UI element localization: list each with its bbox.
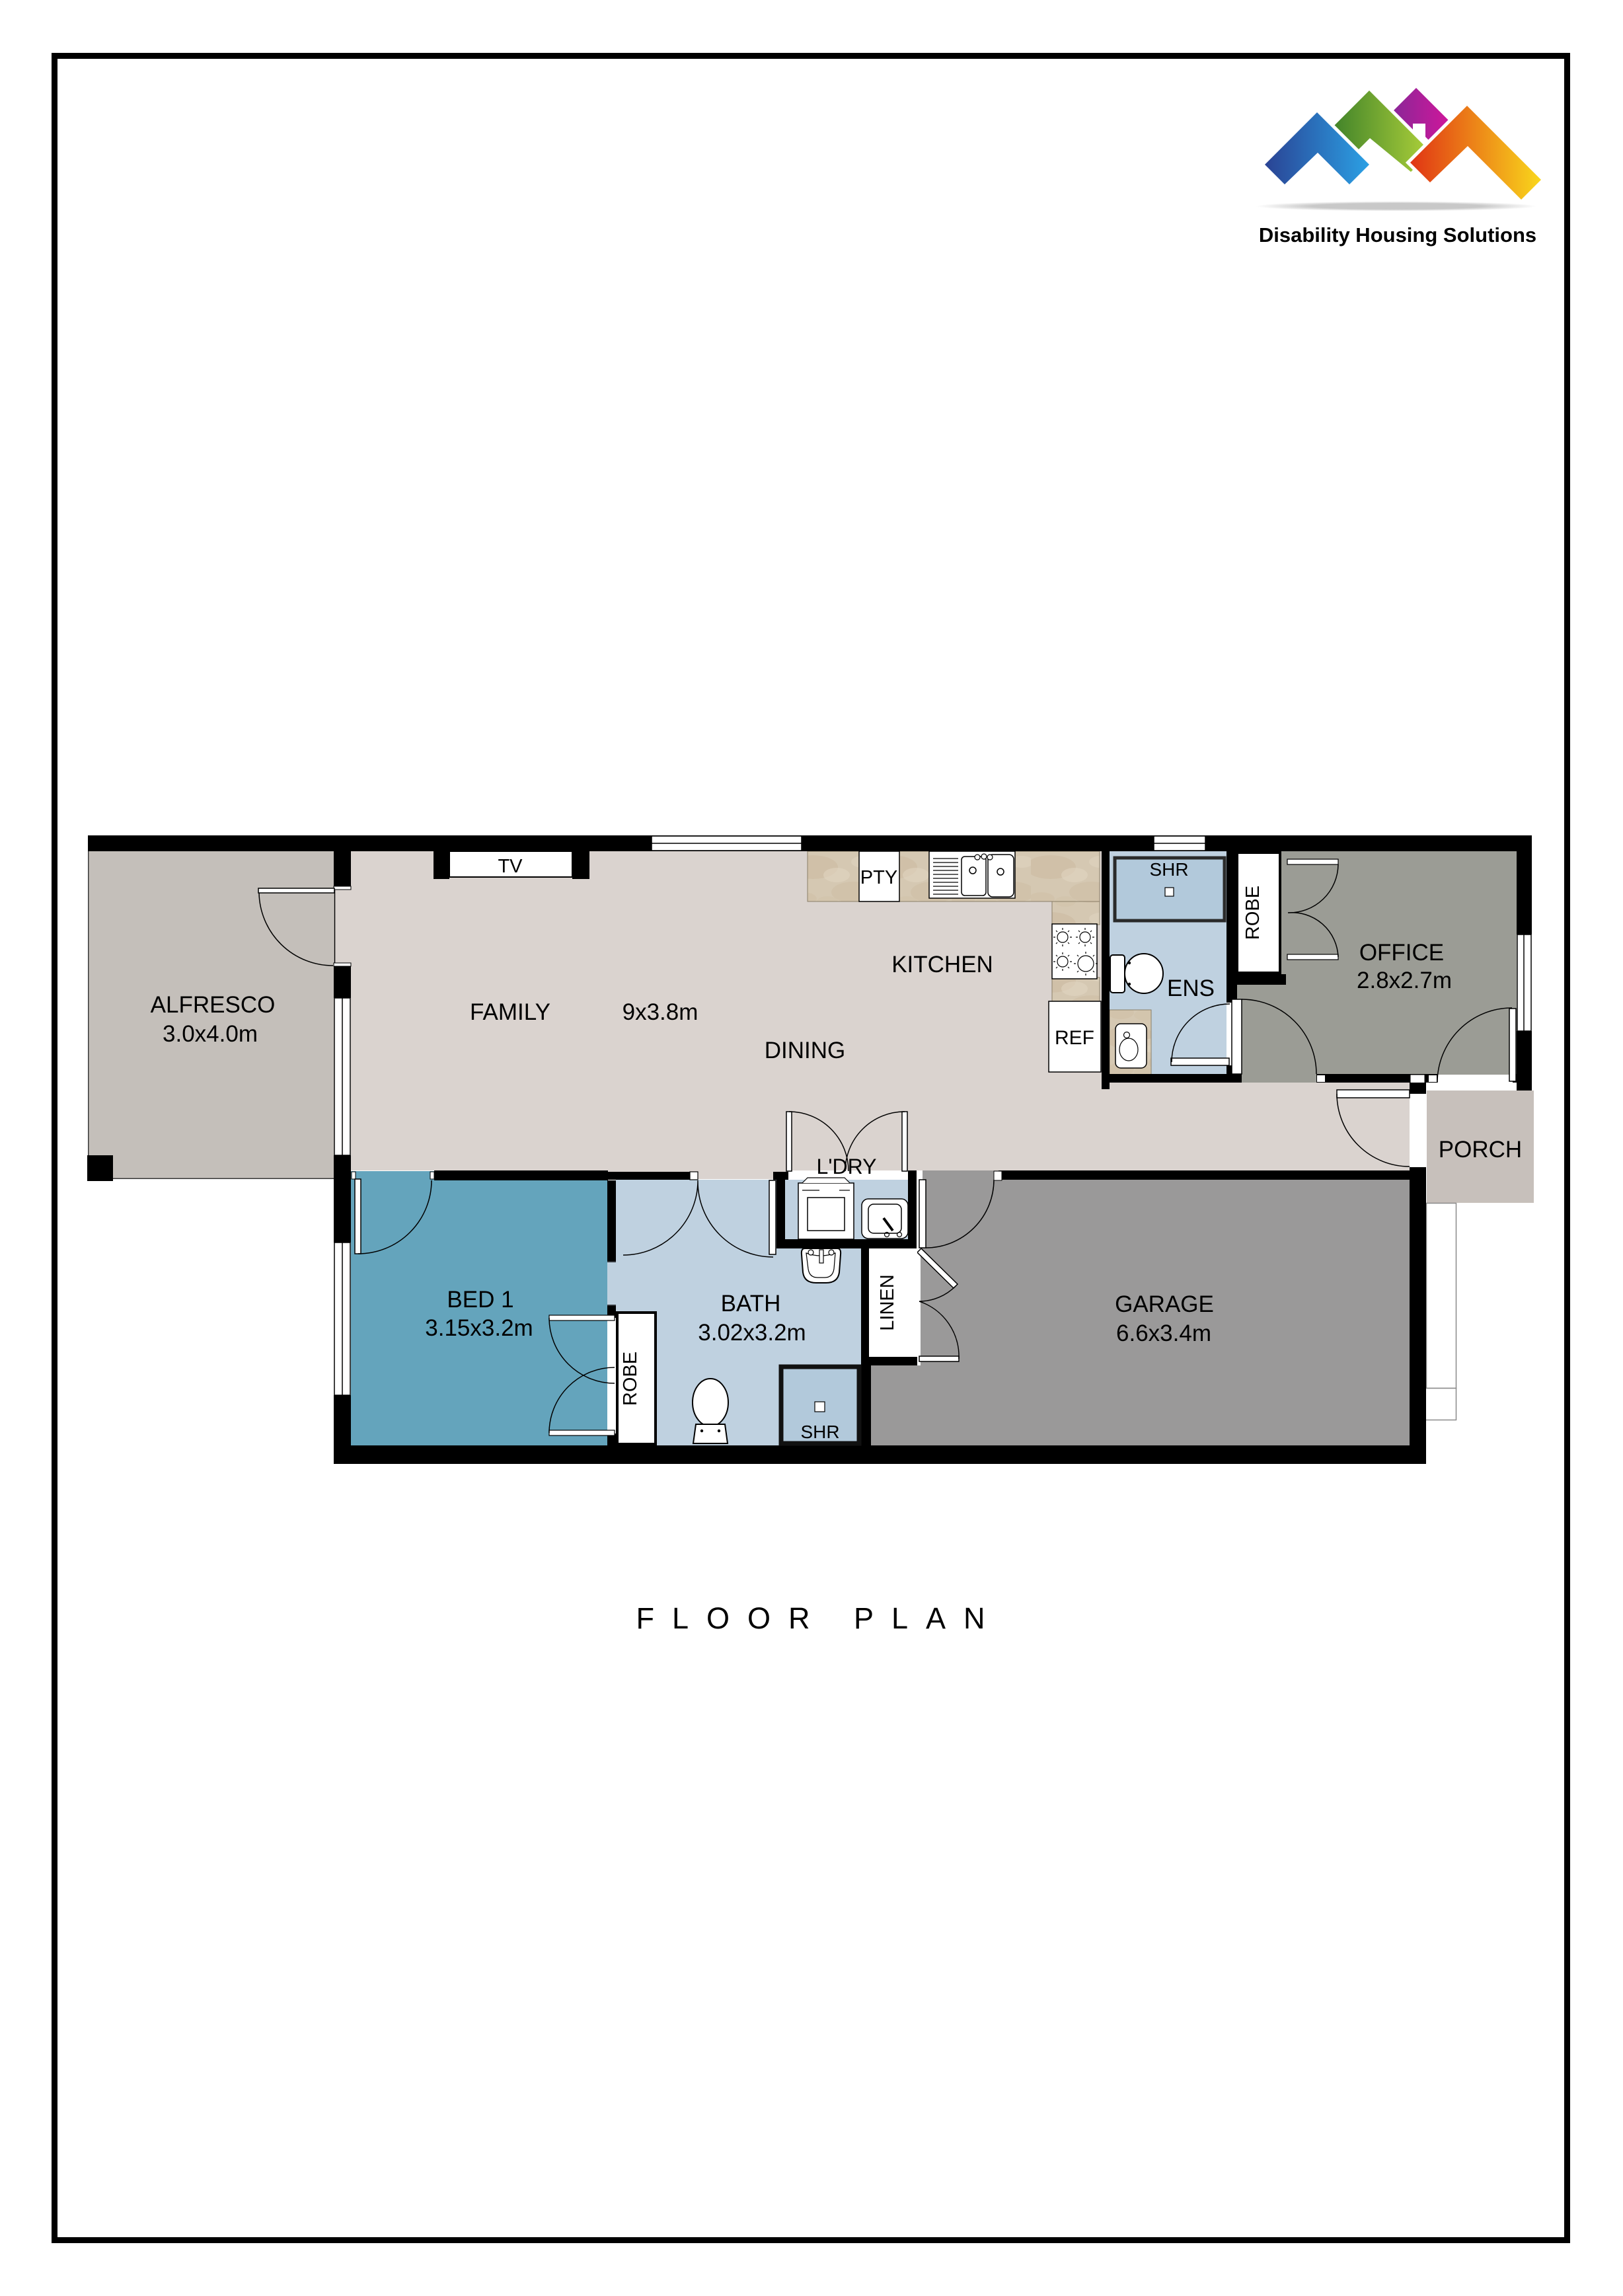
svg-text:LINEN: LINEN (877, 1274, 898, 1330)
svg-text:ROBE: ROBE (620, 1352, 641, 1406)
svg-text:2.8x2.7m: 2.8x2.7m (1357, 968, 1452, 993)
svg-text:KITCHEN: KITCHEN (891, 952, 993, 977)
svg-text:SHR: SHR (800, 1422, 839, 1442)
svg-text:OFFICE: OFFICE (1359, 940, 1444, 966)
svg-text:PTY: PTY (860, 867, 897, 888)
svg-text:ENS: ENS (1167, 976, 1215, 1001)
svg-text:3.0x4.0m: 3.0x4.0m (163, 1021, 258, 1047)
svg-text:3.15x3.2m: 3.15x3.2m (425, 1315, 533, 1341)
svg-text:BED 1: BED 1 (447, 1287, 513, 1313)
svg-text:SHR: SHR (1149, 859, 1188, 880)
svg-text:TV: TV (498, 856, 523, 877)
svg-text:3.02x3.2m: 3.02x3.2m (698, 1320, 806, 1346)
svg-text:L'DRY: L'DRY (817, 1155, 877, 1178)
svg-text:6.6x3.4m: 6.6x3.4m (1116, 1320, 1211, 1346)
svg-text:FLOOR PLAN: FLOOR PLAN (636, 1601, 1002, 1635)
svg-text:DINING: DINING (765, 1038, 846, 1063)
svg-text:9x3.8m: 9x3.8m (623, 999, 698, 1025)
svg-text:BATH: BATH (721, 1291, 781, 1317)
svg-text:GARAGE: GARAGE (1115, 1291, 1214, 1317)
svg-text:ROBE: ROBE (1242, 886, 1264, 940)
svg-text:Disability Housing Solutions: Disability Housing Solutions (1259, 223, 1536, 247)
svg-text:ALFRESCO: ALFRESCO (151, 992, 276, 1018)
svg-text:REF: REF (1055, 1027, 1094, 1049)
svg-text:FAMILY: FAMILY (470, 999, 550, 1025)
svg-text:PORCH: PORCH (1439, 1137, 1522, 1163)
